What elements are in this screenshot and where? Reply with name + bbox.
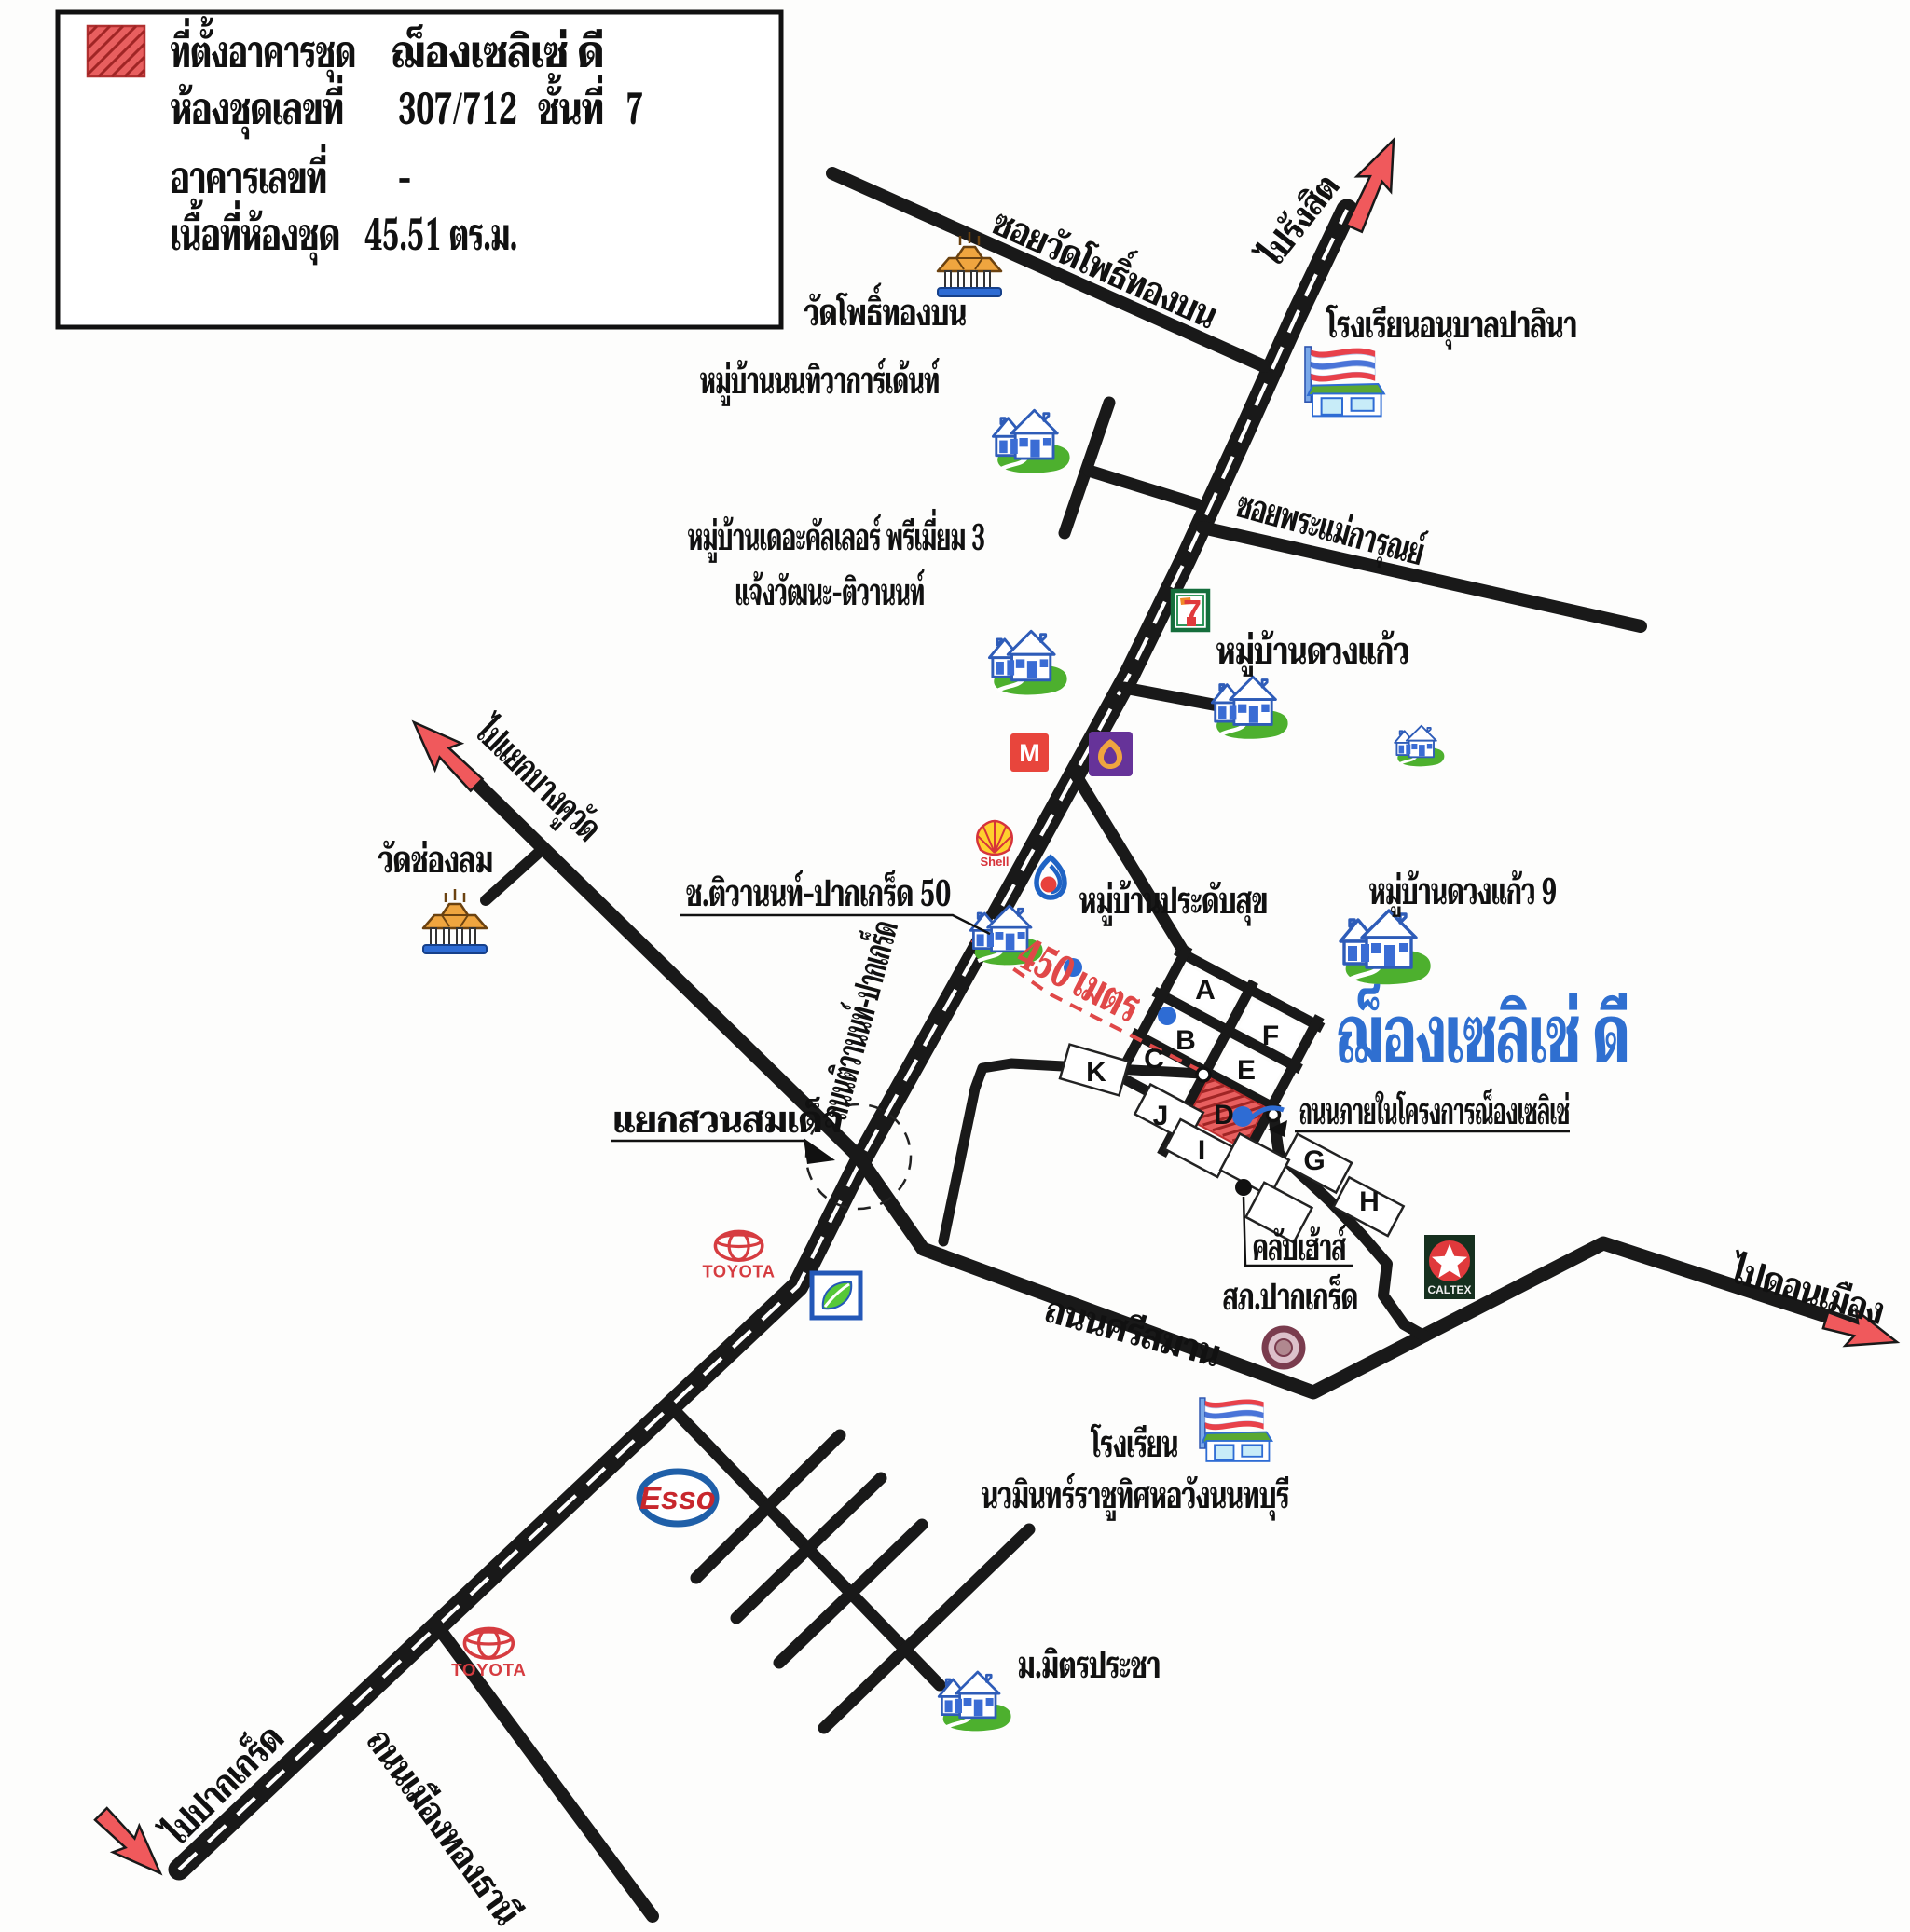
svg-text:Esso: Esso (639, 1481, 715, 1516)
svg-text:E: E (1237, 1055, 1256, 1086)
svg-text:K: K (1086, 1057, 1106, 1088)
svg-text:J: J (1153, 1101, 1169, 1131)
svg-text:F: F (1262, 1021, 1279, 1051)
svg-text:C: C (1144, 1044, 1164, 1075)
svg-text:TOYOTA: TOYOTA (451, 1660, 527, 1679)
svg-text:M: M (1019, 739, 1040, 767)
svg-text:A: A (1195, 975, 1216, 1006)
svg-text:CALTEX: CALTEX (1427, 1283, 1471, 1296)
svg-text:Shell: Shell (980, 855, 1009, 869)
svg-text:G: G (1303, 1145, 1325, 1176)
svg-text:D: D (1214, 1100, 1234, 1130)
svg-text:B: B (1175, 1025, 1196, 1056)
svg-text:H: H (1359, 1186, 1380, 1217)
svg-text:TOYOTA: TOYOTA (702, 1262, 775, 1281)
svg-text:I: I (1198, 1135, 1205, 1166)
